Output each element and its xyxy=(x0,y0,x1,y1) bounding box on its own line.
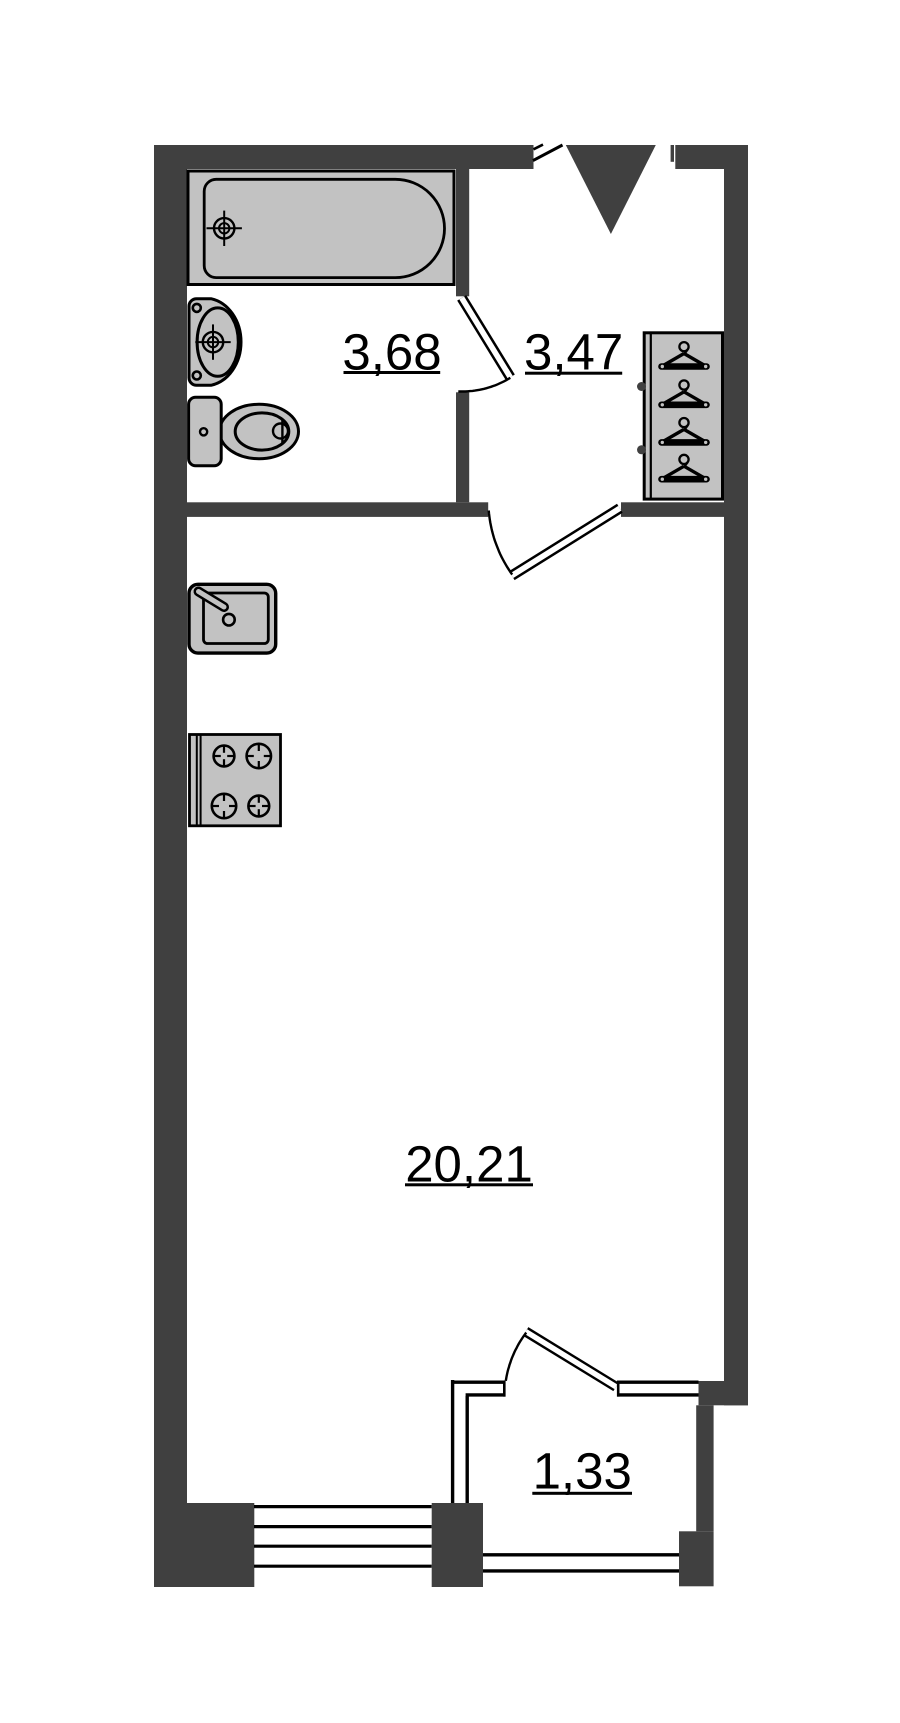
svg-text:1,33: 1,33 xyxy=(533,1443,632,1500)
